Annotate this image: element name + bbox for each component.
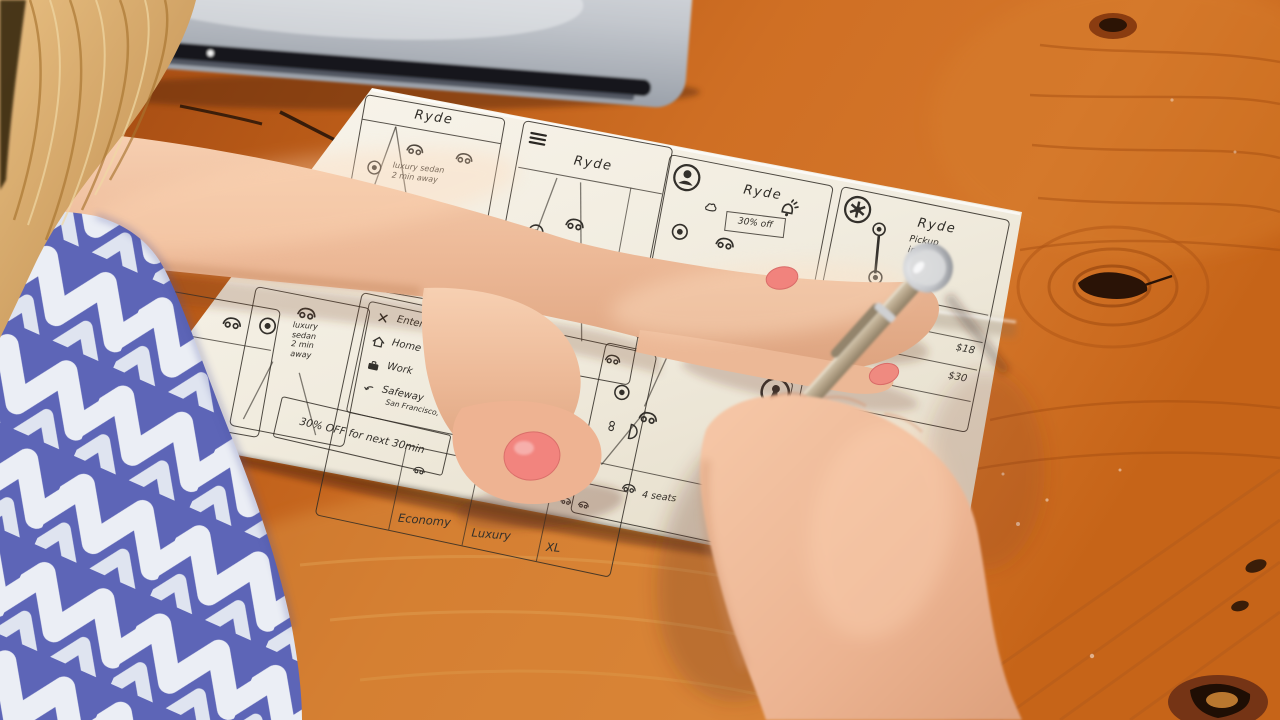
photo-scene: Ryde luxury sedan 2 min away Ryde	[0, 0, 1280, 720]
foreground-layer	[0, 0, 1280, 720]
fabric-sleeve	[0, 208, 302, 720]
